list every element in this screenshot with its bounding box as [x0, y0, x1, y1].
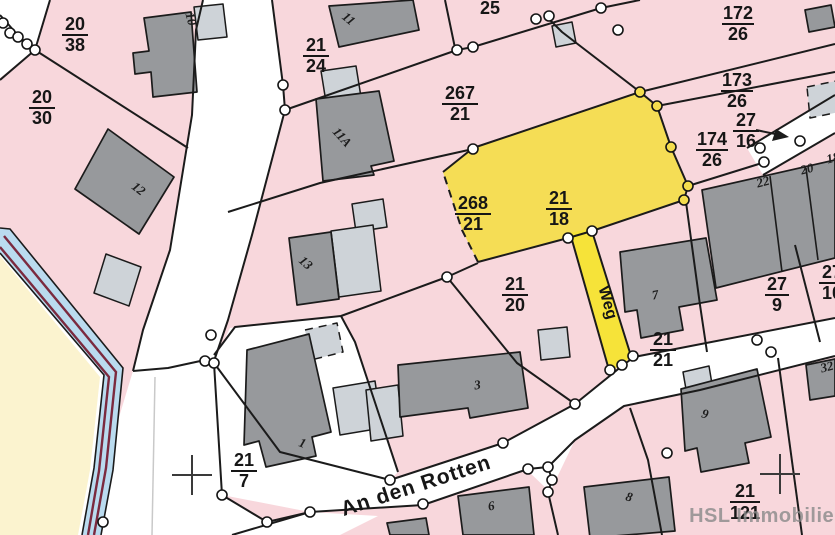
svg-text:173: 173: [722, 70, 752, 90]
building-13: [289, 232, 339, 305]
svg-text:21: 21: [450, 104, 470, 124]
svg-text:26: 26: [727, 91, 747, 111]
svg-text:172: 172: [723, 3, 753, 23]
svg-text:20: 20: [32, 87, 52, 107]
map-canvas: 2038 2030 2124 26721 17226 17326 2716 17…: [0, 0, 835, 535]
svg-text:30: 30: [32, 108, 52, 128]
building-ne-corner: [805, 5, 835, 32]
parcel-label-20-38: 2038: [62, 14, 88, 55]
watermark-logo: HSL Immobilien: [689, 505, 835, 527]
svg-text:21: 21: [505, 274, 525, 294]
parcel-label-21-21: 2121: [650, 329, 676, 370]
parcel-label-27-10: 2710: [819, 262, 835, 303]
parcel-label-21-18: 2118: [546, 188, 572, 229]
svg-text:18: 18: [549, 209, 569, 229]
svg-text:21: 21: [234, 450, 254, 470]
svg-text:10: 10: [822, 283, 835, 303]
parcel-label-21-20: 2120: [502, 274, 528, 315]
svg-text:27: 27: [736, 110, 756, 130]
svg-text:27: 27: [767, 274, 787, 294]
cadastral-map: 2038 2030 2124 26721 17226 17326 2716 17…: [0, 0, 835, 535]
parcel-label-20-30: 2030: [29, 87, 55, 128]
building-6: [458, 487, 534, 535]
svg-text:16: 16: [736, 131, 756, 151]
svg-text:21: 21: [653, 350, 673, 370]
svg-text:9: 9: [772, 295, 782, 315]
building-square-near-3: [538, 327, 570, 360]
svg-text:26: 26: [702, 150, 722, 170]
svg-text:38: 38: [65, 35, 85, 55]
svg-text:7: 7: [239, 471, 249, 491]
parcel-label-25: 25: [480, 0, 500, 18]
building-13-annex: [331, 225, 381, 297]
svg-text:267: 267: [445, 83, 475, 103]
svg-text:21: 21: [735, 481, 755, 501]
parcel-label-27-16: 2716: [733, 110, 759, 151]
svg-text:21: 21: [463, 214, 483, 234]
svg-text:20: 20: [65, 14, 85, 34]
svg-text:21: 21: [306, 35, 326, 55]
svg-text:174: 174: [697, 129, 727, 149]
svg-text:26: 26: [728, 24, 748, 44]
svg-text:21: 21: [549, 188, 569, 208]
svg-text:21: 21: [653, 329, 673, 349]
parcel-label-21-24: 2124: [303, 35, 329, 76]
svg-text:27: 27: [822, 262, 835, 282]
building-ne-dashed: [807, 81, 835, 118]
svg-text:268: 268: [458, 193, 488, 213]
svg-text:20: 20: [505, 295, 525, 315]
svg-text:24: 24: [306, 56, 326, 76]
